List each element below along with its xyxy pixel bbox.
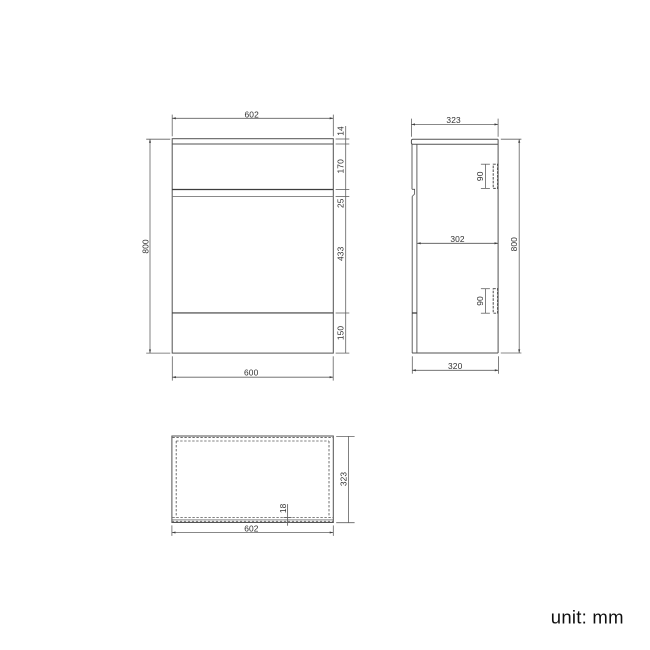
svg-text:602: 602 bbox=[244, 524, 259, 534]
svg-text:320: 320 bbox=[448, 361, 463, 371]
svg-text:800: 800 bbox=[509, 237, 519, 252]
svg-text:14: 14 bbox=[336, 126, 346, 136]
svg-text:602: 602 bbox=[245, 110, 260, 120]
svg-text:433: 433 bbox=[336, 246, 346, 261]
svg-text:600: 600 bbox=[244, 368, 259, 378]
svg-text:90: 90 bbox=[475, 296, 485, 306]
svg-text:800: 800 bbox=[141, 239, 151, 254]
svg-text:302: 302 bbox=[450, 234, 465, 244]
svg-text:323: 323 bbox=[446, 115, 461, 125]
svg-text:unit: mm: unit: mm bbox=[551, 606, 624, 627]
svg-text:25: 25 bbox=[336, 198, 346, 208]
svg-text:90: 90 bbox=[475, 171, 485, 181]
svg-text:150: 150 bbox=[336, 326, 346, 341]
svg-text:18: 18 bbox=[278, 503, 288, 513]
svg-text:170: 170 bbox=[336, 159, 346, 174]
svg-text:323: 323 bbox=[339, 472, 349, 487]
